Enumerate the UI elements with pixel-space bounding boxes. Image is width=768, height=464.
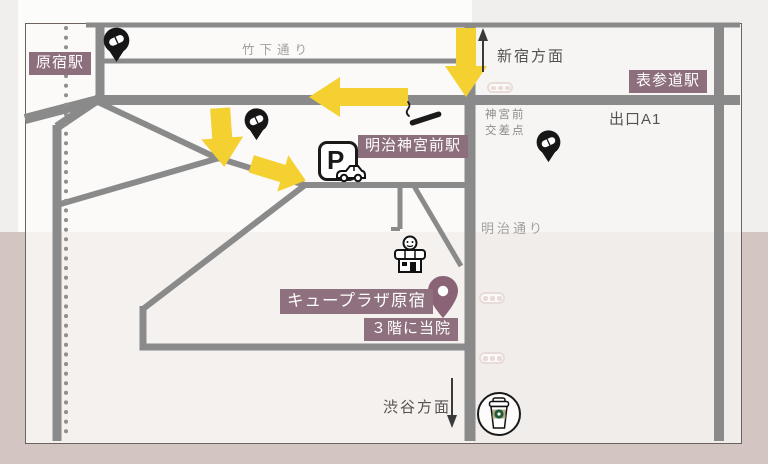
takeshita-street-label: 竹下通り: [242, 39, 312, 58]
exit-a1-label: 出口A1: [609, 108, 661, 129]
access-map: P 竹下通り 明治通り 新宿方面 渋谷方面 出口A1 神宮前 交差点 原宿駅 表…: [0, 0, 768, 464]
clinic-floor-label: ３階に当院: [364, 318, 458, 341]
meiji-street-label: 明治通り: [481, 218, 545, 237]
jingumae-intersection-label: 神宮前 交差点: [485, 107, 526, 139]
qplaza-building-label: キュープラザ原宿: [280, 289, 433, 314]
meiji-jingumae-station-label: 明治神宮前駅: [358, 135, 468, 158]
parking-icon: P: [318, 141, 358, 181]
harajuku-station-label: 原宿駅: [29, 52, 91, 75]
intersection-line2: 交差点: [485, 125, 526, 137]
intersection-line1: 神宮前: [485, 109, 526, 121]
crosswalk-icon: [479, 292, 505, 304]
car-icon: [334, 162, 368, 183]
omotesando-station-label: 表参道駅: [629, 70, 707, 93]
crosswalk-icon: [479, 352, 505, 364]
crosswalk-icon: [487, 82, 513, 93]
shibuya-direction-label: 渋谷方面: [383, 396, 451, 417]
shinjuku-direction-label: 新宿方面: [497, 45, 565, 66]
